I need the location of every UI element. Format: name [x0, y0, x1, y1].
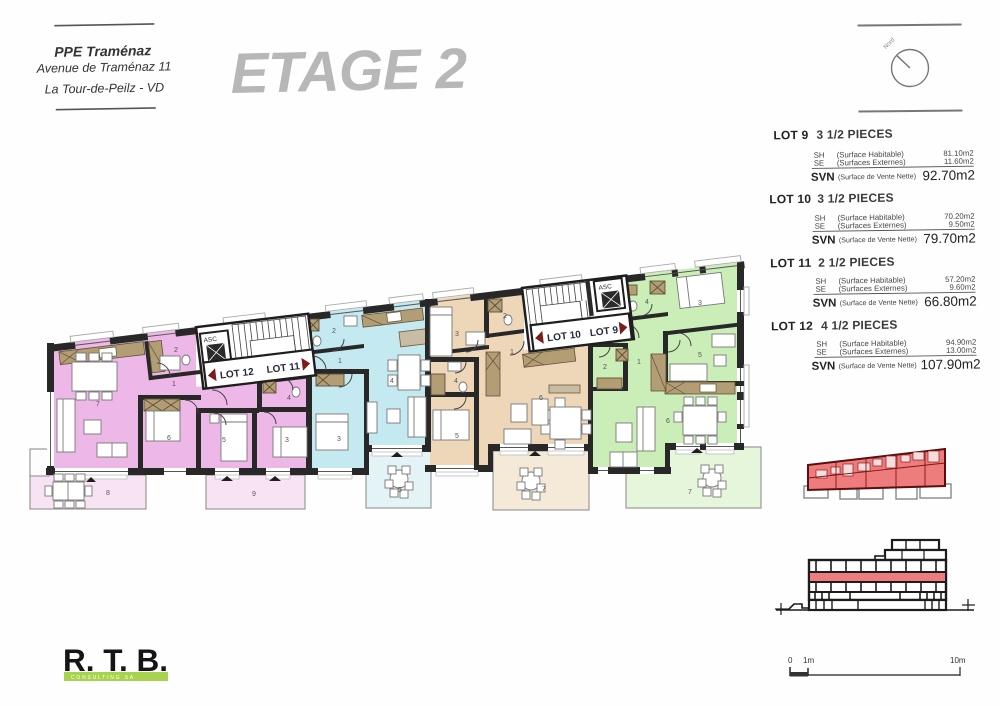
svg-text:2: 2 [174, 347, 178, 354]
svg-text:2: 2 [332, 328, 336, 335]
svg-text:1: 1 [510, 349, 514, 356]
svg-text:SE: SE [815, 285, 826, 294]
svg-text:5: 5 [455, 433, 459, 440]
svg-text:4: 4 [287, 395, 291, 402]
svg-text:4: 4 [645, 299, 649, 306]
svg-text:7: 7 [542, 486, 546, 493]
svg-text:(Surfaces Externes): (Surfaces Externes) [839, 346, 908, 356]
svg-text:SE: SE [814, 159, 825, 168]
svg-text:SVN: SVN [811, 171, 835, 183]
svg-text:SE: SE [816, 348, 827, 357]
svg-text:5: 5 [698, 352, 702, 359]
svg-text:107.90m2: 107.90m2 [920, 356, 980, 372]
svg-text:LOT 10: LOT 10 [769, 192, 811, 207]
svg-text:6: 6 [167, 435, 171, 442]
svg-text:13.00m2: 13.00m2 [946, 346, 976, 355]
svg-text:9: 9 [252, 491, 256, 498]
svg-text:2: 2 [603, 364, 607, 371]
svg-text:66.80m2: 66.80m2 [924, 294, 977, 310]
svg-text:10m: 10m [950, 656, 966, 665]
svg-text:4 1/2 PIECES: 4 1/2 PIECES [821, 318, 898, 333]
svg-text:LOT 11: LOT 11 [770, 256, 812, 271]
svg-text:4: 4 [390, 378, 394, 385]
svg-text:SVN: SVN [812, 360, 836, 372]
svg-text:6: 6 [666, 418, 670, 425]
svg-text:PPE Traménaz: PPE Traménaz [54, 42, 151, 60]
svg-text:SE: SE [815, 222, 826, 231]
svg-text:(Surfaces Externes): (Surfaces Externes) [838, 220, 907, 230]
svg-text:4: 4 [454, 378, 458, 385]
svg-text:9.60m2: 9.60m2 [949, 283, 975, 292]
svg-text:3: 3 [337, 436, 341, 443]
svg-text:(Surface de Vente Nette): (Surface de Vente Nette) [838, 172, 916, 181]
svg-text:9.50m2: 9.50m2 [949, 220, 975, 229]
svg-text:79.70m2: 79.70m2 [923, 231, 976, 247]
svg-text:3: 3 [285, 437, 289, 444]
svg-text:5: 5 [398, 487, 402, 494]
svg-text:11.60m2: 11.60m2 [944, 157, 974, 166]
svg-text:0: 0 [788, 656, 793, 665]
svg-text:3: 3 [698, 300, 702, 307]
svg-text:1: 1 [172, 381, 176, 388]
svg-text:6: 6 [539, 395, 543, 402]
svg-text:5: 5 [222, 437, 226, 444]
svg-text:92.70m2: 92.70m2 [922, 168, 975, 184]
svg-text:7: 7 [96, 401, 100, 408]
svg-text:CONSULTING SA: CONSULTING SA [71, 675, 135, 681]
svg-text:1: 1 [637, 359, 641, 366]
svg-text:Avenue de Traménaz 11: Avenue de Traménaz 11 [36, 59, 172, 75]
svg-text:(Surface de Vente Nette): (Surface de Vente Nette) [839, 361, 917, 370]
svg-text:LOT 12: LOT 12 [771, 319, 813, 334]
svg-text:ETAGE 2: ETAGE 2 [230, 37, 468, 106]
svg-text:(Surfaces Externes): (Surfaces Externes) [837, 157, 906, 167]
svg-text:(Surface de Vente Nette): (Surface de Vente Nette) [840, 298, 918, 307]
svg-text:1m: 1m [803, 656, 814, 665]
svg-text:7: 7 [688, 489, 692, 496]
svg-text:2 1/2 PIECES: 2 1/2 PIECES [818, 255, 895, 270]
svg-text:La Tour-de-Peilz - VD: La Tour-de-Peilz - VD [45, 80, 165, 96]
svg-text:8: 8 [106, 490, 110, 497]
svg-text:(Surface de Vente Nette): (Surface de Vente Nette) [839, 235, 917, 244]
svg-text:2: 2 [503, 313, 507, 320]
svg-text:LOT 9: LOT 9 [773, 128, 808, 142]
svg-text:SVN: SVN [813, 297, 837, 309]
svg-text:3 1/2 PIECES: 3 1/2 PIECES [816, 127, 893, 142]
svg-text:SVN: SVN [812, 234, 836, 246]
svg-text:1: 1 [338, 358, 342, 365]
svg-text:(Surfaces Externes): (Surfaces Externes) [838, 283, 907, 293]
svg-text:3: 3 [455, 331, 459, 338]
svg-text:3 1/2 PIECES: 3 1/2 PIECES [817, 191, 894, 206]
